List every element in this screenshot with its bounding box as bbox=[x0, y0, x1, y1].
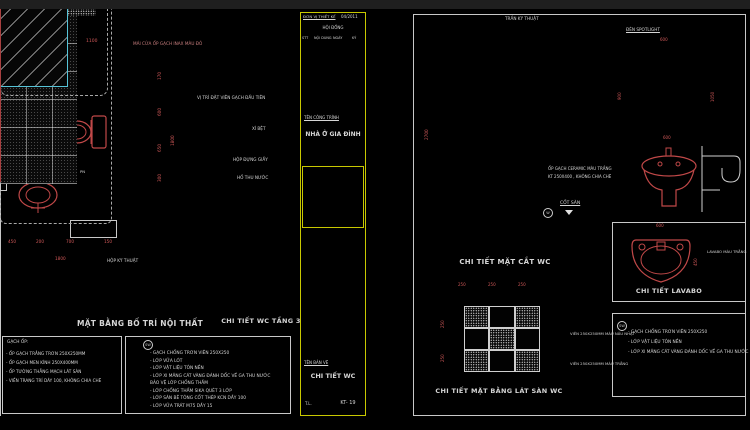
bottom-band bbox=[0, 0, 750, 9]
mirror-panel bbox=[0, 0, 68, 87]
floor-level-label: CỐT SÀN bbox=[560, 201, 580, 206]
section-mark-icon: SW bbox=[143, 340, 153, 350]
dim-value: 700 bbox=[66, 240, 74, 245]
dim-value: 250 bbox=[441, 354, 446, 362]
roof-tile-note: MÁI CỬA ỐP GẠCH INAX MÀU ĐỎ bbox=[133, 42, 202, 47]
note-line: - LỚP SÀN BÊ TÔNG CỐT THÉP KCN DẦY 100 bbox=[150, 397, 246, 402]
tb-col: STT bbox=[302, 37, 308, 41]
tile-cell-light bbox=[464, 328, 489, 350]
tile-checkerboard bbox=[464, 306, 540, 372]
dim-value: 650 bbox=[158, 144, 163, 152]
note-line: - GẠCH CHỐNG TRƠN VIÊN 250X250 bbox=[628, 331, 707, 336]
dim-value: 150 bbox=[104, 240, 112, 245]
dim-value: 200 bbox=[36, 240, 44, 245]
note-line: - LỚP CHỐNG THẤM SIKA QUÉT 3 LỚP bbox=[150, 390, 232, 395]
ceramic-note-1: ỐP GẠCH CERAMIC MÀU TRẮNG bbox=[548, 167, 612, 172]
lavabo-front-icon bbox=[640, 146, 698, 208]
dim-value: 450 bbox=[8, 240, 16, 245]
note-line: - VIỀN TRANG TRÍ DÀY 100, KHÔNG CHIA CHẼ bbox=[6, 379, 101, 384]
note-line: - LỚP VỮA LÓT bbox=[150, 360, 182, 365]
spotlight-label: ĐÈN SPOTLIGHT bbox=[626, 28, 660, 33]
dim-value: 300 bbox=[158, 174, 163, 182]
dim-total-bottom: 1800 bbox=[55, 257, 66, 262]
dim-mirror-top: 600 bbox=[660, 38, 668, 43]
ceramic-note-2: KT 250X400 , KHÔNG CHIA CHẼ bbox=[548, 175, 611, 180]
tile-cell-light bbox=[515, 328, 540, 350]
dim-value: 250 bbox=[441, 320, 446, 328]
scale-label: T.L. bbox=[305, 402, 312, 407]
ceiling-label: TRẦN KỸ THUẬT bbox=[505, 17, 539, 22]
note-line: - LỚP VẬT LIỆU TÔN NỀN bbox=[628, 341, 682, 346]
tile-cell-dark bbox=[464, 306, 489, 328]
issue-date: 04/2011 bbox=[341, 15, 358, 20]
plan-title: MẶT BẰNG BỐ TRÍ NỘI THẤT bbox=[55, 320, 225, 329]
lavabo-side-plumbing-icon bbox=[700, 146, 746, 212]
note-line: - LỚP VỮA TRÁT M75 DẦY 15 bbox=[150, 405, 212, 410]
section-mark-icon: W bbox=[543, 208, 553, 218]
dim-value: 250 bbox=[518, 283, 526, 288]
tile-cell-dark bbox=[515, 306, 540, 328]
lavabo-top-icon bbox=[630, 236, 692, 286]
dim-mirror-right: 1050 bbox=[711, 92, 716, 102]
callout-paper-box: HỘP ĐỰNG GIẤY bbox=[233, 158, 268, 163]
dim-section-height: 2700 bbox=[425, 129, 430, 140]
lavabo-title: CHI TIẾT LAVABO bbox=[624, 288, 714, 295]
cad-drawing-canvas: 300 700 1100 MÁI CỬA ỐP GẠCH INAX MÀU ĐỎ… bbox=[0, 0, 750, 430]
dim-value: 600 bbox=[158, 108, 163, 116]
sheet-number: KT- 19 bbox=[331, 401, 365, 407]
tb-highlight-box bbox=[302, 166, 364, 228]
dim-value: 170 bbox=[158, 72, 163, 80]
callout-tech-box: HỘP KỸ THUẬT bbox=[107, 259, 138, 264]
tile-cell-dark bbox=[464, 350, 489, 372]
drawing-label: TÊN BẢN VẼ bbox=[304, 361, 328, 366]
note-line: - LỚP VẬT LIỆU TÔN NỀN bbox=[150, 367, 204, 372]
dim-value: 250 bbox=[458, 283, 466, 288]
tb-col: NỘI DUNG bbox=[314, 37, 332, 41]
lavabo-color-label: LAVABO MÀU TRẮNG bbox=[707, 250, 746, 254]
firm-label: ĐƠN VỊ THIẾT KẾ bbox=[303, 15, 336, 19]
dim-lavabo-front: 600 bbox=[663, 136, 671, 141]
note-line: - LỚP XI MĂNG CÁT VÀNG ĐÁNH DỐC VỀ GA TH… bbox=[150, 375, 270, 380]
project-label: TÊN CÔNG TRÌNH bbox=[304, 116, 339, 121]
tb-col: KÝ bbox=[352, 37, 356, 41]
dim-total-right: 1800 bbox=[171, 135, 176, 146]
tb-col: NGÀY bbox=[333, 37, 342, 41]
note-line: - GẠCH CHỐNG TRƠN VIÊN 250X250 bbox=[150, 352, 229, 357]
note-line: - LỚP XI MĂNG CÁT VÀNG ĐÁNH DỐC VỀ GA TH… bbox=[628, 351, 748, 356]
drawing-name: CHI TIẾT WC bbox=[300, 373, 366, 380]
tile-cell-dark bbox=[515, 350, 540, 372]
finish-notes-heading: GẠCH ỐP: bbox=[7, 341, 28, 346]
callout-toilet: XÍ BỆT bbox=[252, 127, 266, 132]
tile-cell-light bbox=[489, 306, 514, 328]
level-triangle-icon bbox=[565, 210, 573, 215]
note-line: - ỐP TƯỜNG THẲNG MẠCH LÁT SÀN bbox=[6, 370, 81, 375]
note-line: BẢO VỆ LỚP CHỐNG THẤM bbox=[150, 382, 208, 387]
dim-value: 250 bbox=[488, 283, 496, 288]
tile-cell-light bbox=[489, 350, 514, 372]
dim-lavabo-top: 600 bbox=[656, 224, 664, 229]
council-label: HỘI ĐỒNG bbox=[300, 26, 366, 31]
tile-cell-dark bbox=[489, 328, 514, 350]
section-mark-icon: SW bbox=[617, 321, 627, 331]
callout-drain: HỐ THU NƯỚC bbox=[237, 176, 268, 181]
callout-first-tile: VỊ TRÍ ĐẶT VIÊN GẠCH ĐẦU TIÊN bbox=[197, 96, 265, 101]
section-title: CHI TIẾT MẶT CẮT WC bbox=[440, 258, 570, 266]
project-name: NHÀ Ở GIA ĐÌNH bbox=[300, 132, 366, 139]
finish-notes-box bbox=[2, 336, 122, 414]
detail-title: CHI TIẾT WC TẦNG 3 bbox=[220, 318, 302, 325]
dim-lavabo-side: 450 bbox=[694, 258, 699, 266]
dim-mirror-left: 900 bbox=[618, 92, 623, 100]
tiling-title: CHI TIẾT MẶT BẰNG LÁT SÀN WC bbox=[430, 388, 568, 395]
note-line: - ỐP GẠCH TRẮNG TRƠN 250X250MM bbox=[6, 352, 85, 357]
note-line: - ỐP GẠCH MEN KÍNH 250X400MM bbox=[6, 361, 78, 366]
